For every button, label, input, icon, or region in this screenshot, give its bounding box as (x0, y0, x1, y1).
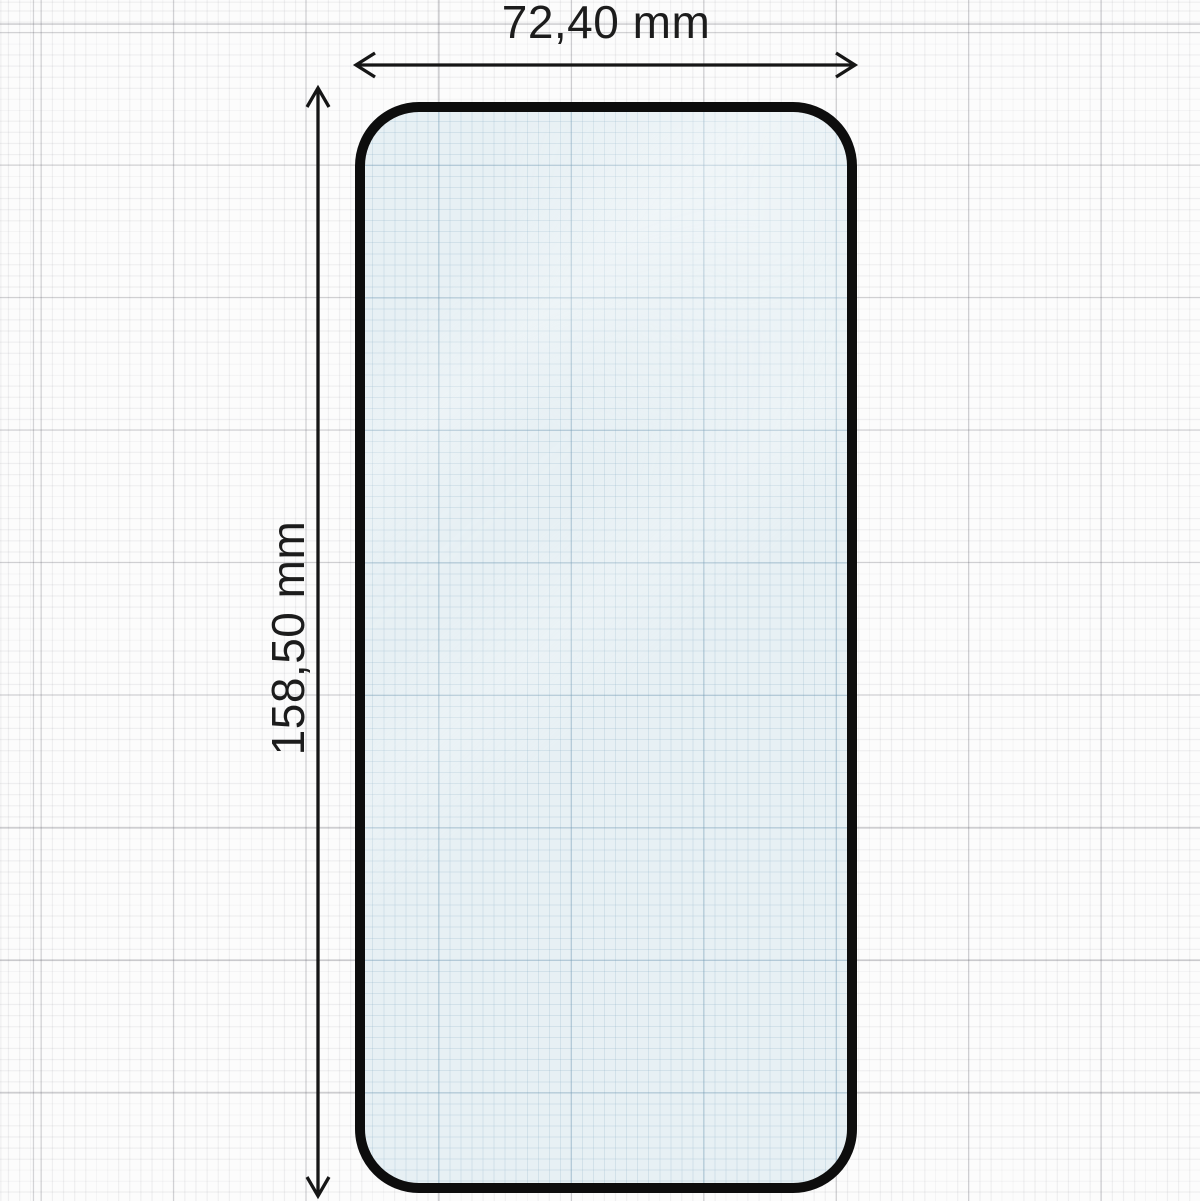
width-dimension-label: 72,40 mm (355, 0, 857, 47)
screen-protector-outline (355, 102, 857, 1193)
diagram-stage: 72,40 mm 158,50 mm (0, 0, 1200, 1201)
glass-reflection-overlay (365, 112, 847, 1183)
width-dimension-arrow (348, 45, 860, 85)
height-dimension-label: 158,50 mm (263, 468, 313, 808)
